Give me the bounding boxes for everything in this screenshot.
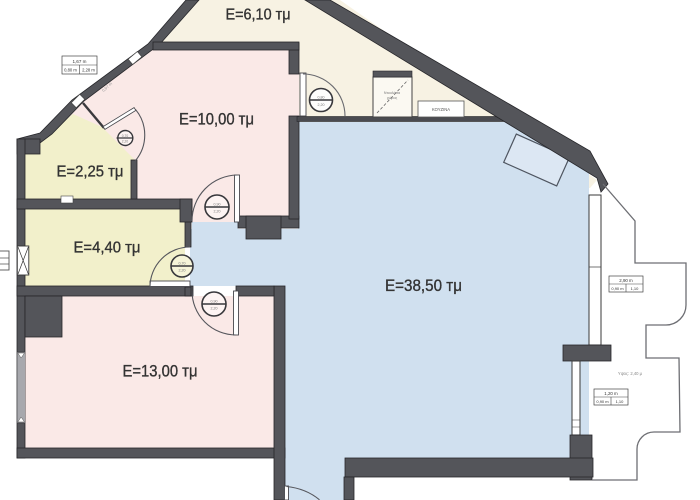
svg-text:E=10,00 тμ: E=10,00 тμ (179, 111, 254, 129)
svg-text:2,20: 2,20 (318, 103, 325, 107)
svg-text:0,90: 0,90 (214, 203, 221, 207)
svg-text:Υψος: 2,40 μ: Υψος: 2,40 μ (618, 371, 643, 376)
svg-text:2,28 m: 2,28 m (82, 68, 95, 73)
svg-text:E=6,10 тμ: E=6,10 тμ (226, 7, 291, 24)
svg-text:2,90 m: 2,90 m (619, 278, 633, 283)
svg-text:2,20: 2,20 (214, 210, 221, 214)
svg-text:1,10: 1,10 (616, 399, 625, 404)
svg-text:χώρος: χώρος (387, 96, 398, 100)
svg-text:0,90: 0,90 (211, 300, 218, 304)
svg-text:0,90 m: 0,90 m (596, 399, 609, 404)
svg-text:Ντουλάπα: Ντουλάπα (384, 91, 400, 95)
svg-text:E=13,00 тμ: E=13,00 тμ (123, 363, 198, 381)
svg-text:ΚΟΥΖΙΝΑ: ΚΟΥΖΙΝΑ (432, 107, 450, 112)
svg-text:0,90 m: 0,90 m (611, 286, 624, 291)
svg-text:E=38,50 тμ: E=38,50 тμ (385, 276, 462, 295)
svg-text:2,20: 2,20 (179, 269, 186, 273)
svg-text:E=2,25 тμ: E=2,25 тμ (57, 164, 124, 181)
svg-text:2,20: 2,20 (122, 140, 129, 144)
svg-text:1,20 m: 1,20 m (604, 391, 618, 396)
svg-text:0,70: 0,70 (122, 134, 129, 138)
svg-text:0,80 m: 0,80 m (64, 68, 77, 73)
svg-text:1,10: 1,10 (631, 286, 640, 291)
svg-text:1,67 m: 1,67 m (72, 59, 86, 64)
svg-text:0,70: 0,70 (179, 262, 186, 266)
svg-text:0,80: 0,80 (318, 96, 325, 100)
svg-text:E=4,40 тμ: E=4,40 тμ (74, 240, 141, 257)
svg-text:2,20: 2,20 (211, 307, 218, 311)
